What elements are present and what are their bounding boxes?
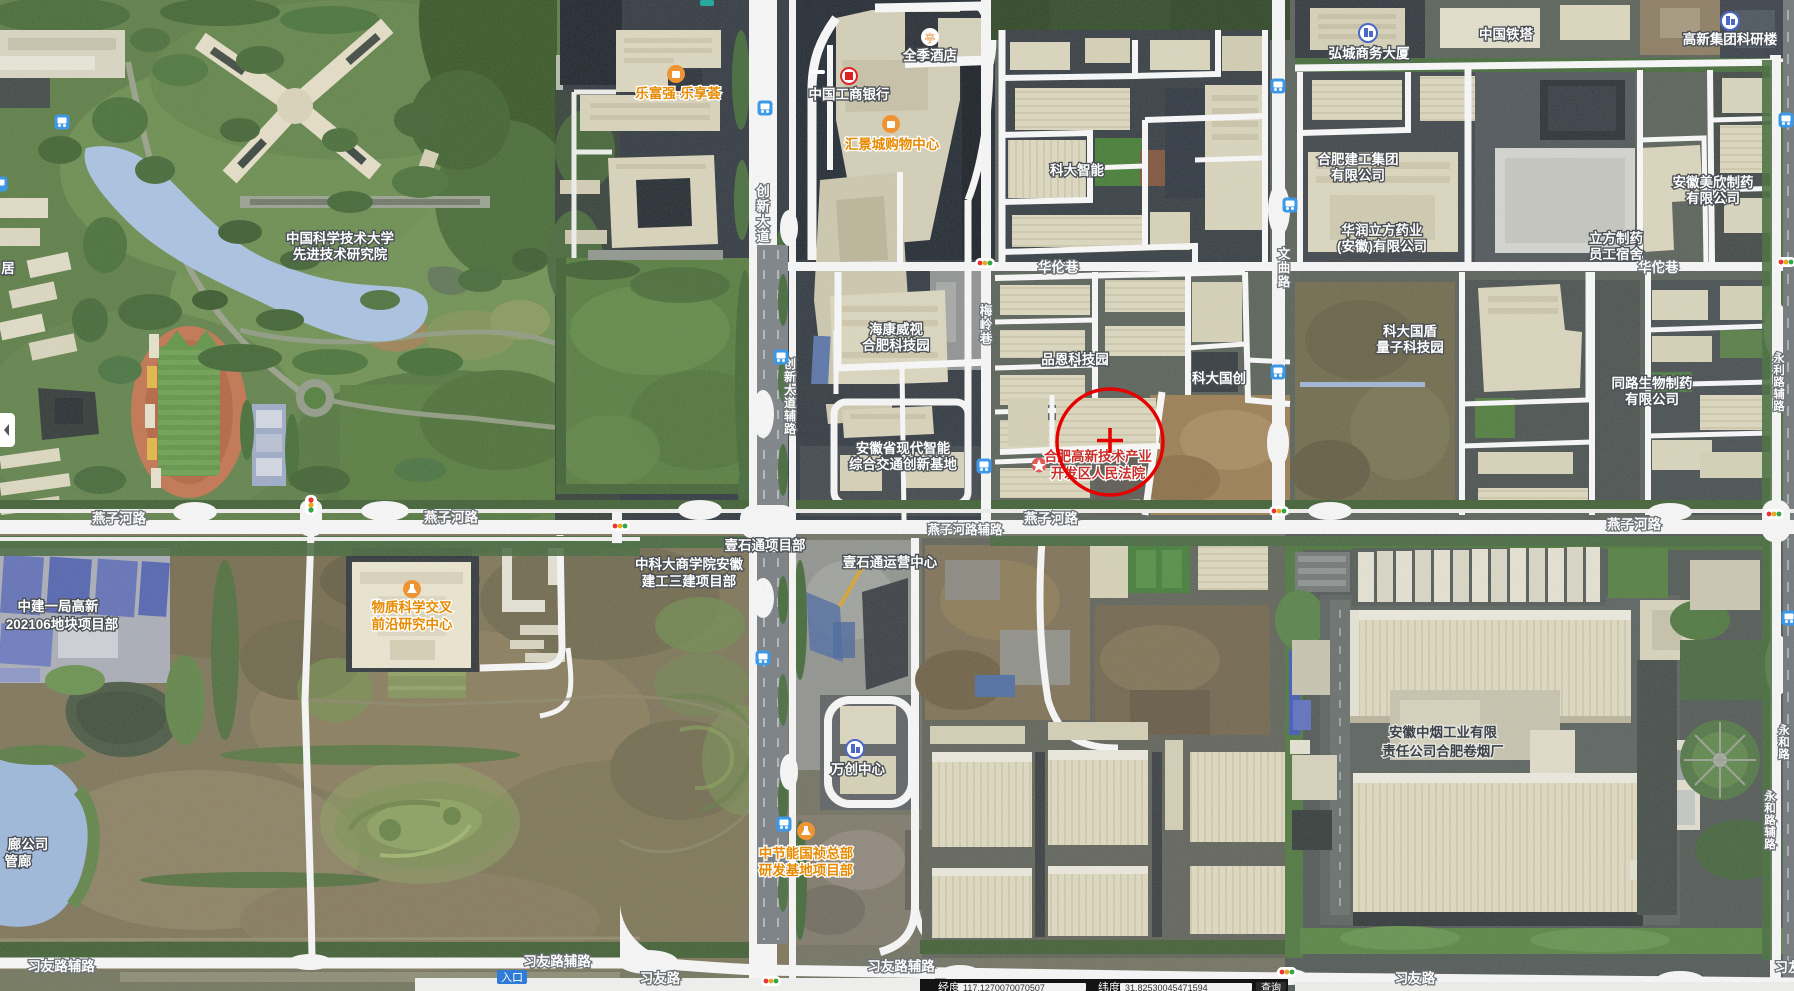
svg-text:有限公司: 有限公司 — [1625, 391, 1679, 407]
svg-text:管廊: 管廊 — [5, 853, 32, 869]
svg-text:燕子河路: 燕子河路 — [1607, 516, 1661, 532]
svg-text:永和路: 永和路 — [1777, 723, 1790, 761]
svg-text:综合交通创新基地: 综合交通创新基地 — [849, 456, 957, 472]
svg-text:汇景城购物中心: 汇景城购物中心 — [845, 136, 940, 152]
svg-text:品恩科技园: 品恩科技园 — [1041, 351, 1109, 367]
svg-text:(安徽)有限公司: (安徽)有限公司 — [1337, 238, 1427, 254]
svg-text:员工宿舍: 员工宿舍 — [1589, 246, 1643, 262]
svg-text:华伦巷: 华伦巷 — [1038, 259, 1079, 275]
svg-text:科大国创: 科大国创 — [1192, 370, 1246, 386]
svg-text:纬度: 纬度 — [1098, 980, 1120, 991]
svg-text:立方制药: 立方制药 — [1589, 230, 1643, 246]
svg-text:科大智能: 科大智能 — [1050, 162, 1104, 178]
svg-text:永和路辅路: 永和路辅路 — [1763, 789, 1776, 851]
svg-text:安徽省现代智能: 安徽省现代智能 — [856, 440, 951, 456]
svg-text:安徽美欣制药: 安徽美欣制药 — [1673, 174, 1754, 190]
svg-text:乐富强·乐享荟: 乐富强·乐享荟 — [635, 85, 721, 101]
svg-text:燕子河路: 燕子河路 — [1024, 510, 1078, 526]
svg-text:中国工商银行: 中国工商银行 — [809, 86, 890, 102]
svg-text:永利路辅路: 永利路辅路 — [1772, 351, 1785, 413]
svg-text:高新集团科研楼: 高新集团科研楼 — [1683, 31, 1778, 47]
svg-text:燕子河路: 燕子河路 — [424, 509, 478, 525]
svg-text:中建一局高新: 中建一局高新 — [18, 598, 99, 614]
svg-text:习友路辅路: 习友路辅路 — [523, 953, 591, 969]
svg-text:习友路: 习友路 — [640, 970, 681, 986]
svg-text:中节能国祯总部: 中节能国祯总部 — [759, 845, 854, 861]
svg-text:31.82530045471594: 31.82530045471594 — [1125, 983, 1208, 991]
svg-text:117.1270070070507: 117.1270070070507 — [963, 983, 1045, 991]
svg-text:居: 居 — [1, 261, 15, 276]
svg-text:安徽中烟工业有限: 安徽中烟工业有限 — [1389, 724, 1497, 740]
svg-text:习友: 习友 — [1775, 959, 1794, 975]
svg-text:壹石通运营中心: 壹石通运营中心 — [843, 554, 938, 570]
svg-text:中国铁塔: 中国铁塔 — [1479, 26, 1533, 42]
svg-text:有限公司: 有限公司 — [1331, 167, 1385, 183]
svg-text:创新大道辅路: 创新大道辅路 — [783, 356, 797, 436]
svg-text:同路生物制药: 同路生物制药 — [1612, 375, 1693, 391]
svg-text:有限公司: 有限公司 — [1686, 190, 1740, 206]
svg-text:亭: 亭 — [925, 31, 936, 45]
svg-text:万创中心: 万创中心 — [830, 761, 885, 777]
svg-text:科大国盾: 科大国盾 — [1383, 323, 1437, 339]
svg-text:查询: 查询 — [1261, 981, 1281, 991]
svg-text:经度: 经度 — [938, 980, 960, 991]
svg-text:创新大道: 创新大道 — [755, 183, 770, 244]
svg-text:海康威视: 海康威视 — [869, 321, 923, 337]
svg-text:习友路辅路: 习友路辅路 — [867, 958, 935, 974]
svg-text:物质科学交叉: 物质科学交叉 — [372, 599, 453, 615]
svg-text:梅岭巷: 梅岭巷 — [979, 303, 993, 346]
svg-text:责任公司合肥卷烟厂: 责任公司合肥卷烟厂 — [1382, 743, 1504, 759]
svg-text:华润立方药业: 华润立方药业 — [1342, 222, 1423, 238]
svg-text:燕子河路: 燕子河路 — [92, 510, 146, 526]
svg-text:全季酒店: 全季酒店 — [902, 47, 957, 63]
svg-text:习友路辅路: 习友路辅路 — [27, 958, 95, 974]
svg-text:燕子河路辅路: 燕子河路辅路 — [927, 522, 1003, 537]
svg-text:202106地块项目部: 202106地块项目部 — [6, 616, 119, 632]
svg-text:先进技术研究院: 先进技术研究院 — [293, 246, 388, 262]
svg-text:文曲路: 文曲路 — [1278, 246, 1291, 289]
svg-text:弘城商务大厦: 弘城商务大厦 — [1329, 45, 1410, 61]
svg-text:华佗巷: 华佗巷 — [1638, 259, 1679, 275]
svg-text:前沿研究中心: 前沿研究中心 — [372, 616, 453, 632]
svg-text:建工三建项目部: 建工三建项目部 — [641, 573, 737, 589]
svg-text:中科大商学院安徽: 中科大商学院安徽 — [635, 556, 743, 572]
svg-text:合肥建工集团: 合肥建工集团 — [1318, 151, 1399, 167]
svg-text:入口: 入口 — [501, 972, 523, 984]
svg-text:量子科技园: 量子科技园 — [1376, 339, 1444, 355]
svg-text:合肥科技园: 合肥科技园 — [862, 337, 930, 353]
svg-text:廊公司: 廊公司 — [8, 836, 49, 852]
svg-text:习友路: 习友路 — [1395, 970, 1436, 986]
svg-text:壹石通项目部: 壹石通项目部 — [725, 537, 806, 553]
svg-text:研发基地项目部: 研发基地项目部 — [759, 862, 854, 878]
svg-text:中国科学技术大学: 中国科学技术大学 — [286, 230, 394, 246]
